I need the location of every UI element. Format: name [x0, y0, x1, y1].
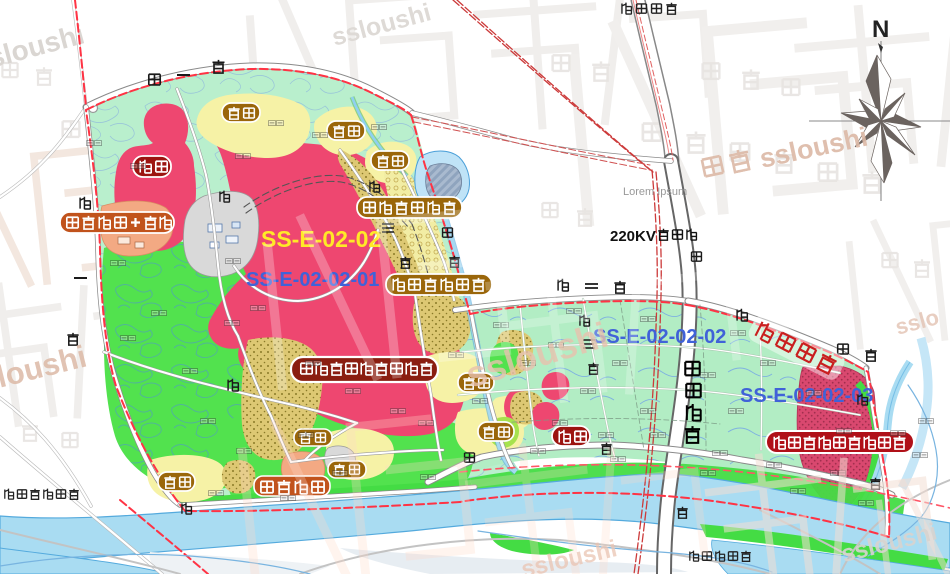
- svg-text:220KV: 220KV: [610, 228, 656, 245]
- svg-text:Lorem Ipsum: Lorem Ipsum: [623, 186, 687, 198]
- svg-text:SS-E-02-02: SS-E-02-02: [261, 226, 381, 252]
- svg-text:SS-E-02-02-02: SS-E-02-02-02: [593, 326, 726, 348]
- svg-text:SS-E-02-02-03: SS-E-02-02-03: [740, 385, 873, 407]
- svg-text:N: N: [872, 16, 889, 43]
